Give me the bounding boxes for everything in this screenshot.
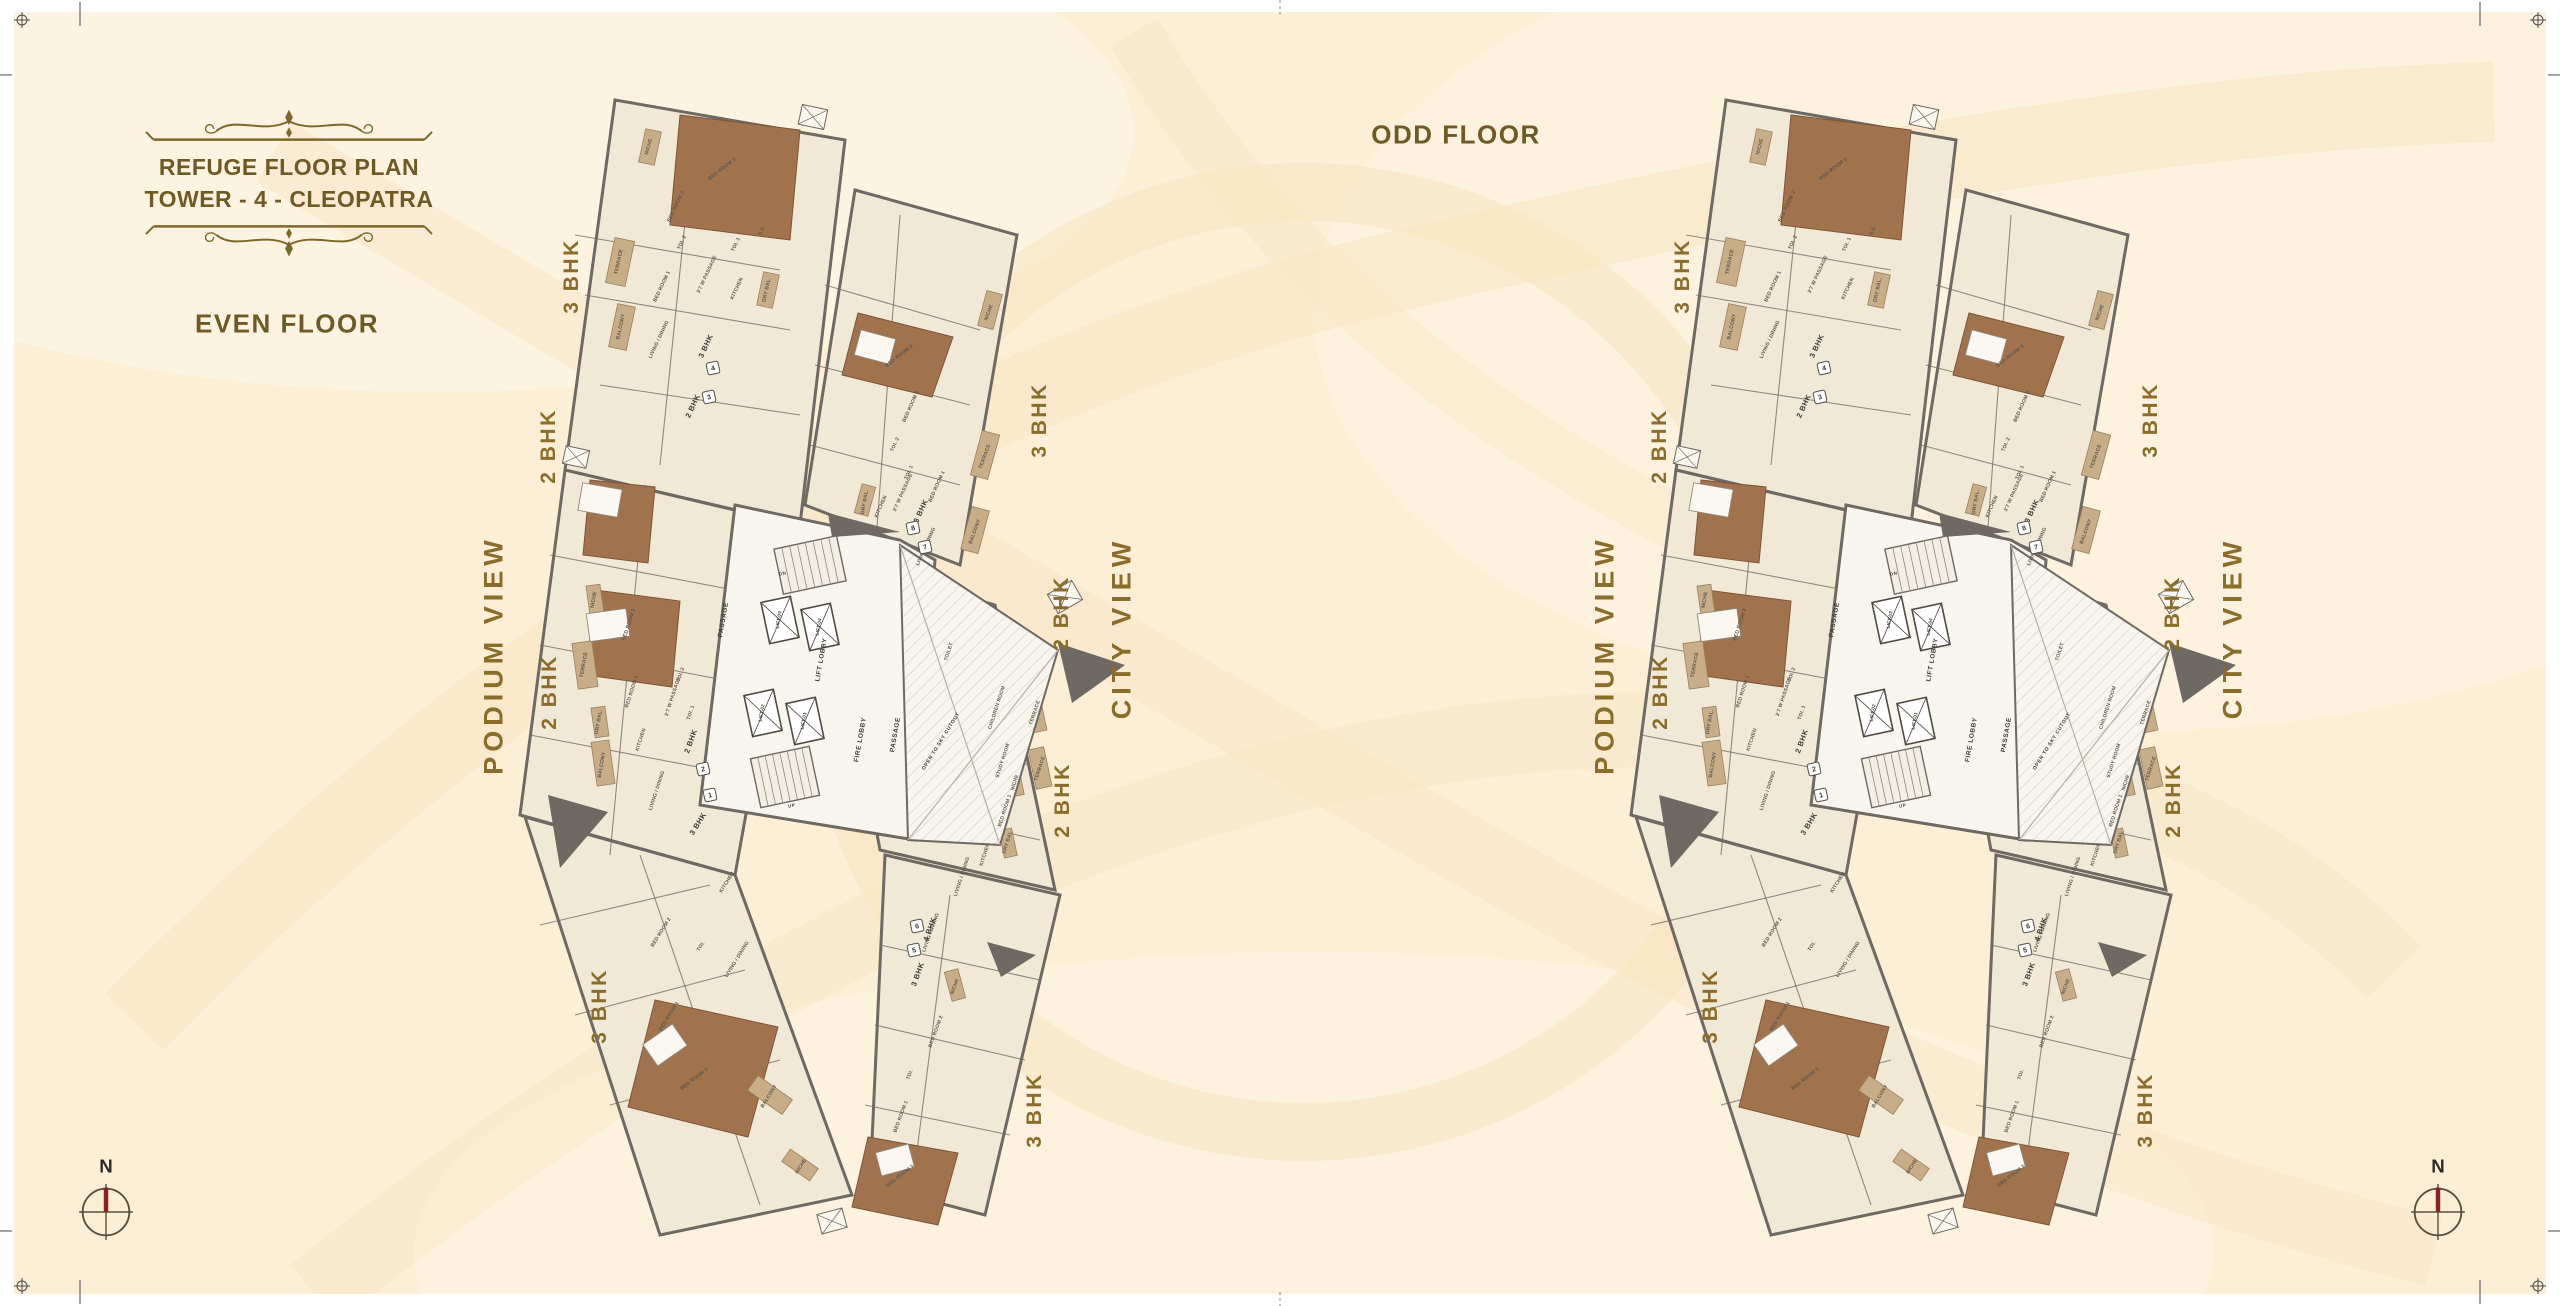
flourish-ornament-top	[144, 107, 434, 151]
bhk-ring-label: 2 BHK	[2161, 575, 2185, 651]
view-label: CITY VIEW	[2218, 537, 2249, 720]
view-label: PODIUM VIEW	[479, 535, 510, 775]
bhk-ring-label: 2 BHK	[2162, 762, 2186, 838]
wood-floor-room	[1781, 115, 1911, 240]
unit-number-chip: 3	[702, 390, 716, 404]
compass-north-label: N	[99, 1155, 112, 1176]
bhk-ring-label: 2 BHK	[1050, 575, 1074, 651]
unit-number-chip: 2	[696, 762, 710, 776]
bhk-ring-label: 2 BHK	[1051, 762, 1075, 838]
page-title-line2: TOWER - 4 - CLEOPATRA	[144, 183, 434, 215]
flourish-ornament-bottom	[144, 215, 434, 259]
unit-number-chip: 7	[2029, 540, 2043, 554]
unit-number-chip: 4	[706, 361, 720, 375]
page-title-line1: REFUGE FLOOR PLAN	[144, 151, 434, 183]
unit-number-chip: 1	[703, 788, 717, 802]
title-block: REFUGE FLOOR PLAN TOWER - 4 - CLEOPATRA	[144, 107, 434, 259]
compass-north-label: N	[2431, 1155, 2444, 1176]
unit-number-chip: 4	[1817, 361, 1831, 375]
bhk-ring-label: 2 BHK	[1649, 654, 1673, 730]
planter-box	[1909, 105, 1939, 130]
compass-needle	[2436, 1188, 2440, 1213]
wood-floor-room	[670, 115, 800, 240]
planter-box	[817, 1208, 847, 1234]
bhk-ring-label: 2 BHK	[537, 408, 561, 484]
bhk-ring-label: 3 BHK	[560, 238, 584, 314]
even-floor-plan: LIFT-03LIFT-04LIFT-02LIFT-01LIFT LOBBYFI…	[480, 85, 1180, 1245]
bhk-ring-label: 3 BHK	[2139, 382, 2163, 458]
compass-rose-left: N	[71, 1155, 141, 1255]
unit-number-chip: 7	[918, 540, 932, 554]
bhk-ring-label: 3 BHK	[588, 968, 612, 1044]
view-label: CITY VIEW	[1107, 537, 1138, 720]
brochure-spread: REFUGE FLOOR PLAN TOWER - 4 - CLEOPATRA …	[0, 0, 2560, 1306]
unit-number-chip: 5	[2018, 943, 2032, 957]
unit-number-chip: 6	[2021, 919, 2035, 933]
even-floor-heading: EVEN FLOOR	[195, 309, 379, 340]
unit-number-chip: 3	[1813, 390, 1827, 404]
bhk-ring-label: 3 BHK	[1028, 382, 1052, 458]
bhk-ring-label: 2 BHK	[1648, 408, 1672, 484]
page-background: REFUGE FLOOR PLAN TOWER - 4 - CLEOPATRA …	[14, 12, 2546, 1294]
unit-number-chip: 5	[907, 943, 921, 957]
bhk-ring-label: 3 BHK	[1699, 968, 1723, 1044]
odd-floor-heading: ODD FLOOR	[1371, 120, 1541, 151]
unit-number-chip: 2	[1807, 762, 1821, 776]
bhk-ring-label: 3 BHK	[2134, 1072, 2158, 1148]
view-label: PODIUM VIEW	[1590, 535, 1621, 775]
compass-needle	[104, 1188, 108, 1213]
compass-rose-right: N	[2403, 1155, 2473, 1255]
unit-number-chip: 8	[2017, 521, 2031, 535]
unit-number-chip: 1	[1814, 788, 1828, 802]
planter-box	[798, 105, 828, 130]
unit-number-chip: 6	[910, 919, 924, 933]
odd-floor-plan: LIFT-03LIFT-04LIFT-02LIFT-01LIFT LOBBYFI…	[1591, 85, 2291, 1245]
floor-plan-drawing-odd: LIFT-03LIFT-04LIFT-02LIFT-01LIFT LOBBYFI…	[1591, 85, 2291, 1245]
planter-box	[1928, 1208, 1958, 1234]
bhk-ring-label: 3 BHK	[1671, 238, 1695, 314]
unit-number-chip: 8	[906, 521, 920, 535]
bhk-ring-label: 3 BHK	[1023, 1072, 1047, 1148]
bhk-ring-label: 2 BHK	[538, 654, 562, 730]
floor-plan-drawing-even: LIFT-03LIFT-04LIFT-02LIFT-01LIFT LOBBYFI…	[480, 85, 1180, 1245]
